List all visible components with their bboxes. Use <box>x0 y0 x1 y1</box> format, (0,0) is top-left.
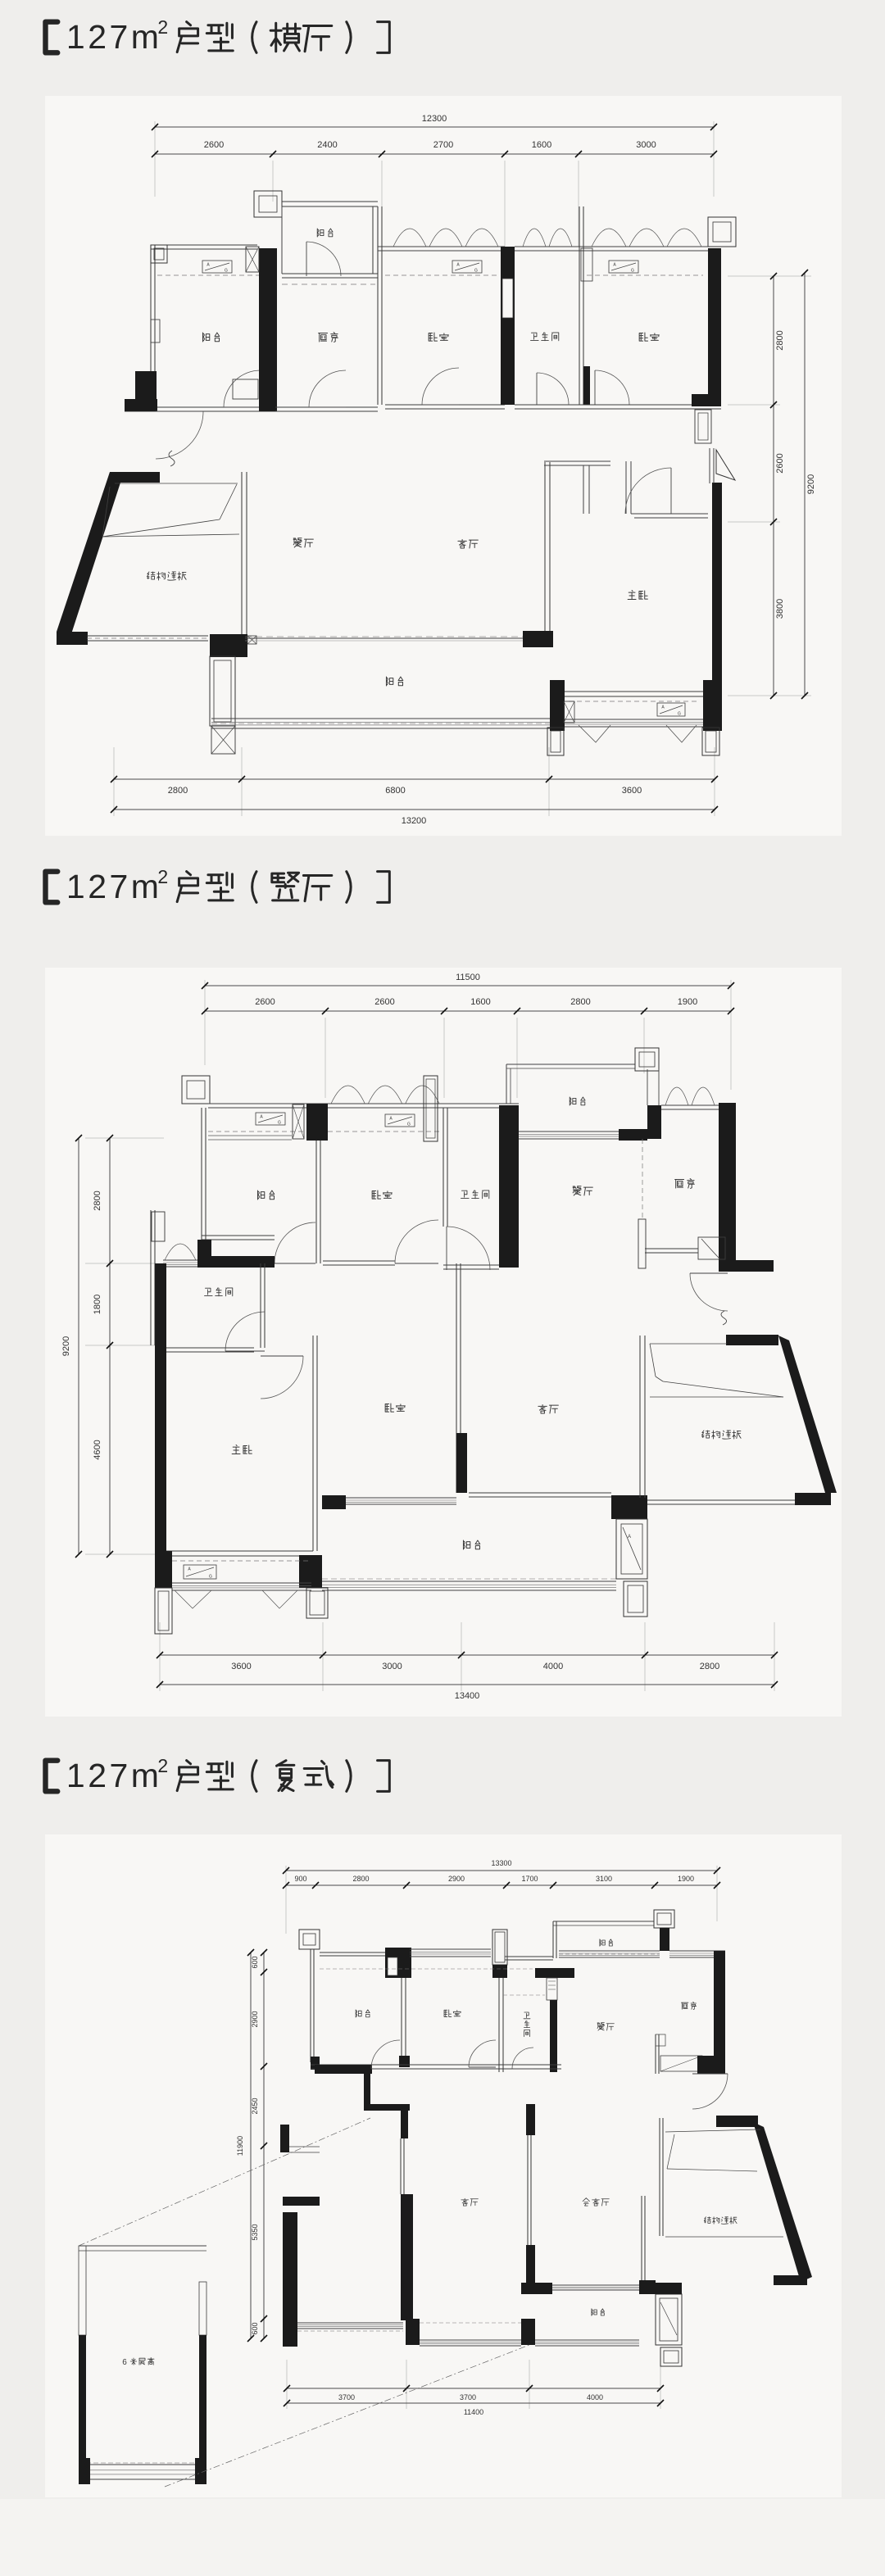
svg-text:G: G <box>225 269 228 274</box>
svg-text:1800: 1800 <box>93 1295 102 1314</box>
svg-text:13300: 13300 <box>491 1859 511 1867</box>
svg-text:G: G <box>474 269 478 274</box>
svg-text:2800: 2800 <box>570 997 590 1007</box>
svg-text:G: G <box>278 1121 281 1126</box>
svg-text:3000: 3000 <box>636 140 656 150</box>
svg-text:600: 600 <box>251 2322 259 2334</box>
svg-text:11500: 11500 <box>456 973 480 982</box>
svg-text:6: 6 <box>122 2358 127 2367</box>
svg-text:1700: 1700 <box>521 1875 538 1883</box>
svg-text:12300: 12300 <box>422 114 447 124</box>
svg-text:5350: 5350 <box>251 2224 259 2240</box>
svg-text:4600: 4600 <box>93 1440 102 1459</box>
svg-text:900: 900 <box>294 1875 306 1883</box>
svg-text:2800: 2800 <box>700 1662 719 1671</box>
svg-text:G: G <box>631 269 634 274</box>
svg-text:11400: 11400 <box>464 2408 483 2416</box>
svg-text:3600: 3600 <box>231 1662 251 1671</box>
svg-text:13400: 13400 <box>455 1691 480 1701</box>
svg-text:G: G <box>209 1575 212 1580</box>
svg-text:3700: 3700 <box>460 2393 476 2401</box>
svg-text:1900: 1900 <box>678 1875 694 1883</box>
svg-text:3700: 3700 <box>338 2393 355 2401</box>
svg-text:G: G <box>407 1122 411 1127</box>
svg-text:2: 2 <box>157 1755 168 1776</box>
svg-text:1600: 1600 <box>532 140 551 150</box>
svg-text:2800: 2800 <box>168 786 188 796</box>
svg-text:4000: 4000 <box>587 2393 603 2401</box>
svg-text:2600: 2600 <box>255 997 275 1007</box>
svg-text:9200: 9200 <box>806 474 816 494</box>
svg-text:11900: 11900 <box>236 2136 244 2156</box>
svg-text:1900: 1900 <box>678 997 697 1007</box>
svg-text:2: 2 <box>157 866 168 887</box>
svg-text:9200: 9200 <box>61 1336 71 1356</box>
svg-text:2900: 2900 <box>251 2011 259 2027</box>
svg-text:2450: 2450 <box>251 2098 259 2114</box>
svg-text:3600: 3600 <box>622 786 642 796</box>
svg-text:2800: 2800 <box>775 330 785 350</box>
svg-text:2600: 2600 <box>204 140 224 150</box>
svg-text:2800: 2800 <box>93 1190 102 1210</box>
svg-text:3000: 3000 <box>382 1662 402 1671</box>
svg-text:6800: 6800 <box>385 786 405 796</box>
svg-text:2900: 2900 <box>448 1875 465 1883</box>
svg-text:13200: 13200 <box>402 816 427 826</box>
svg-text:2800: 2800 <box>352 1875 369 1883</box>
svg-text:2600: 2600 <box>775 453 785 473</box>
svg-text:127m: 127m <box>66 18 162 56</box>
svg-text:A: A <box>628 1535 631 1540</box>
svg-text:G: G <box>678 712 681 717</box>
svg-text:1600: 1600 <box>470 997 490 1007</box>
svg-text:3100: 3100 <box>596 1875 612 1883</box>
svg-text:3800: 3800 <box>775 599 785 619</box>
svg-text:127m: 127m <box>66 1757 162 1794</box>
svg-text:4000: 4000 <box>543 1662 563 1671</box>
svg-text:2400: 2400 <box>317 140 337 150</box>
svg-text:2700: 2700 <box>433 140 453 150</box>
svg-text:2: 2 <box>157 16 168 38</box>
svg-text:600: 600 <box>251 1956 259 1968</box>
svg-text:2600: 2600 <box>374 997 394 1007</box>
svg-text:127m: 127m <box>66 868 162 905</box>
